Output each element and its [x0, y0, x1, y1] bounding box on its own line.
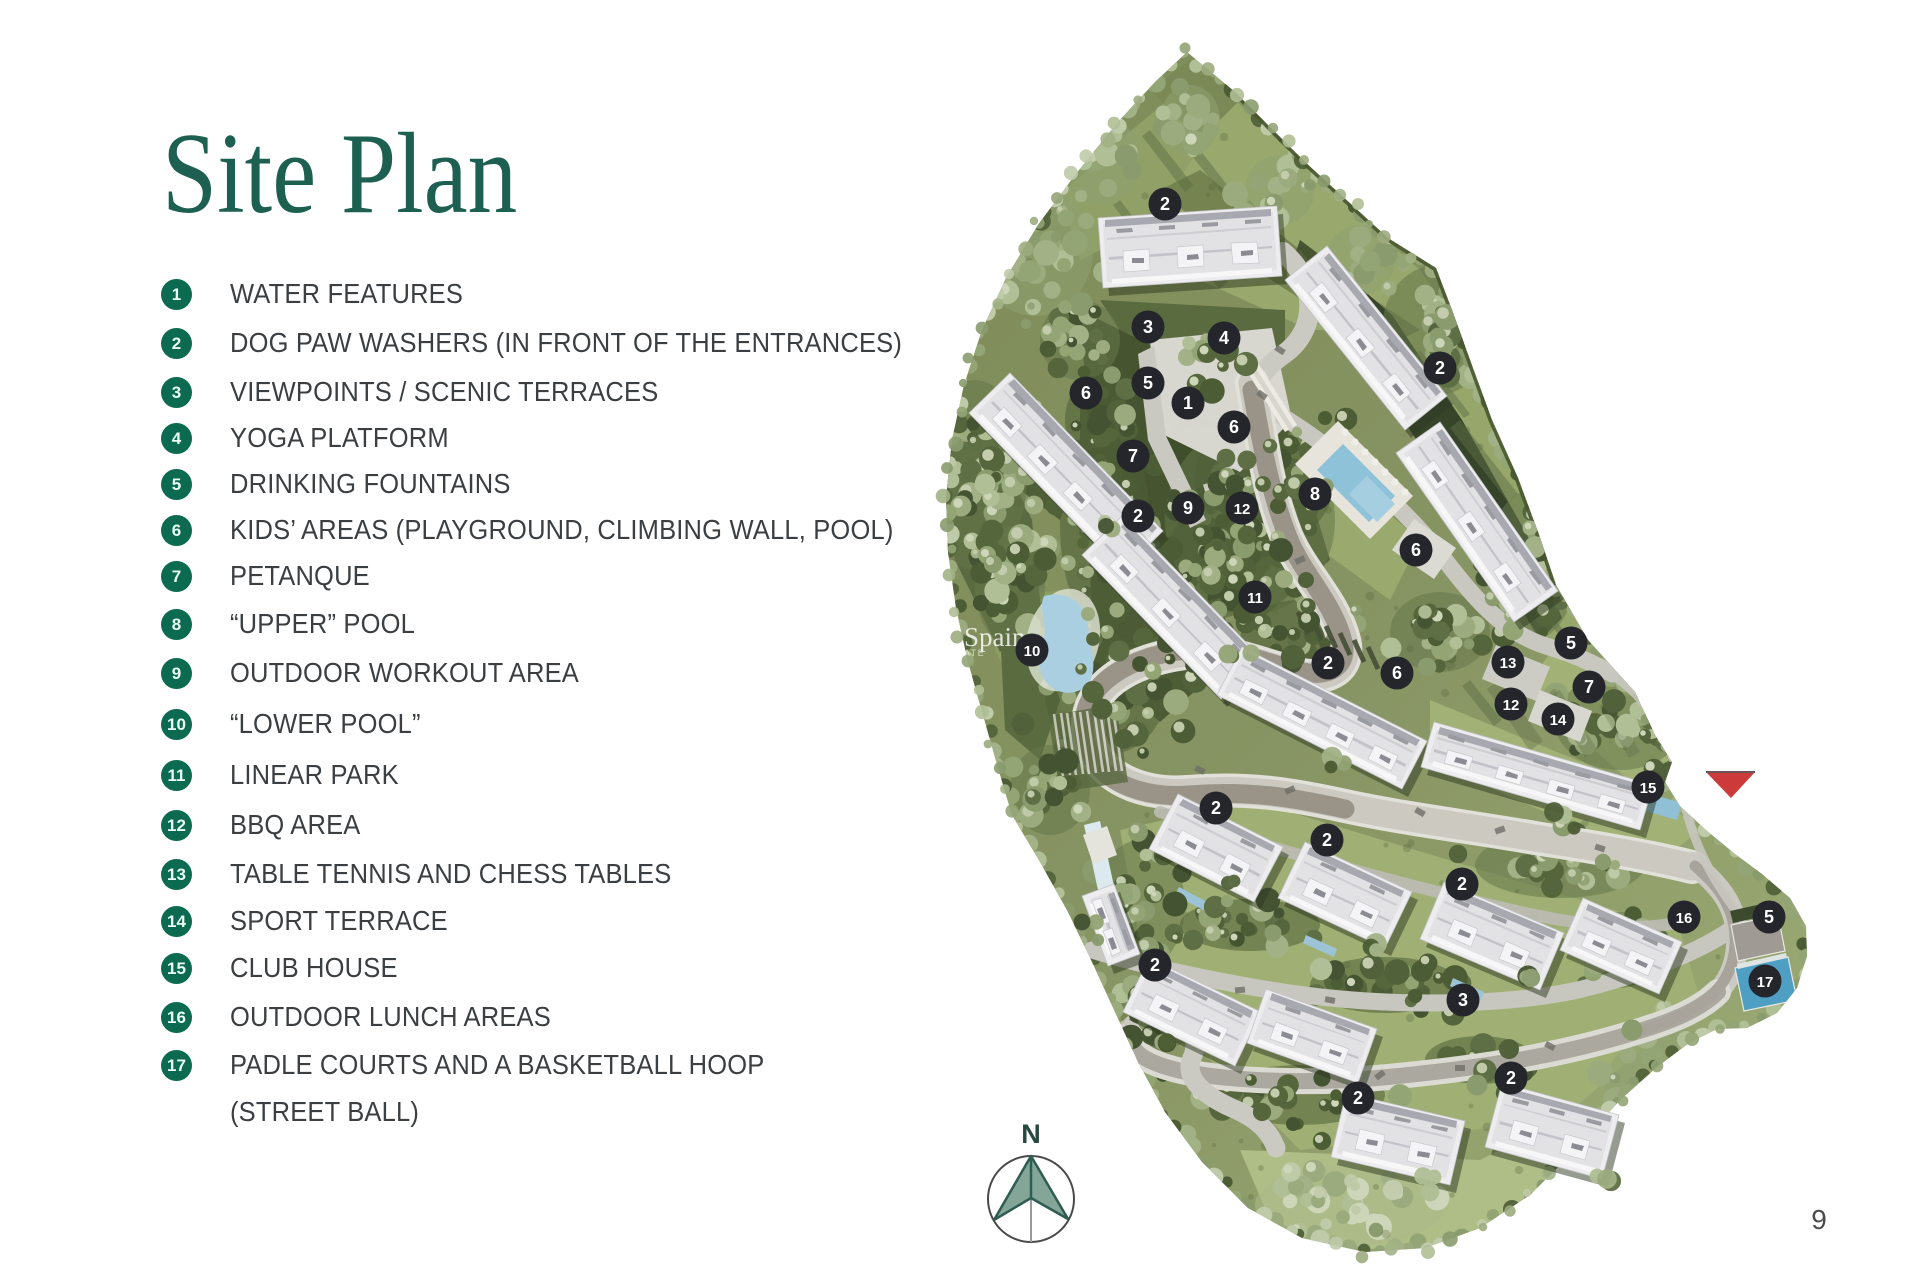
- svg-text:9: 9: [1183, 498, 1193, 518]
- svg-text:9: 9: [1811, 1204, 1827, 1235]
- svg-text:3: 3: [1458, 990, 1468, 1010]
- svg-text:N: N: [1021, 1119, 1041, 1149]
- svg-text:2: 2: [1133, 506, 1143, 526]
- svg-text:3: 3: [1143, 317, 1153, 337]
- svg-text:16: 16: [1676, 910, 1693, 927]
- svg-text:7: 7: [1128, 446, 1138, 466]
- svg-text:2: 2: [1160, 194, 1170, 214]
- svg-text:2: 2: [1211, 798, 1221, 818]
- svg-text:2: 2: [1150, 955, 1160, 975]
- svg-text:7: 7: [1584, 677, 1594, 697]
- svg-text:2: 2: [1322, 830, 1332, 850]
- svg-text:5: 5: [1764, 907, 1774, 927]
- svg-text:10: 10: [1024, 643, 1041, 660]
- svg-text:2: 2: [1435, 358, 1445, 378]
- svg-text:5: 5: [1143, 373, 1153, 393]
- svg-text:15: 15: [1640, 780, 1657, 797]
- svg-text:5: 5: [1566, 633, 1576, 653]
- svg-text:2: 2: [1353, 1088, 1363, 1108]
- svg-text:4: 4: [1219, 328, 1229, 348]
- svg-text:6: 6: [1229, 417, 1239, 437]
- svg-text:2: 2: [1323, 653, 1333, 673]
- svg-text:12: 12: [1234, 501, 1251, 518]
- svg-text:6: 6: [1392, 663, 1402, 683]
- svg-text:13: 13: [1500, 655, 1517, 672]
- svg-text:8: 8: [1310, 484, 1320, 504]
- svg-text:STATE: STATE: [950, 648, 985, 658]
- svg-text:1: 1: [1183, 393, 1193, 413]
- svg-text:2: 2: [1457, 874, 1467, 894]
- svg-text:6: 6: [1081, 383, 1091, 403]
- svg-text:14: 14: [1550, 712, 1567, 729]
- svg-text:17: 17: [1757, 974, 1774, 991]
- svg-text:6: 6: [1411, 540, 1421, 560]
- svg-text:11: 11: [1247, 590, 1263, 607]
- svg-text:12: 12: [1503, 697, 1520, 714]
- svg-text:2: 2: [1506, 1068, 1516, 1088]
